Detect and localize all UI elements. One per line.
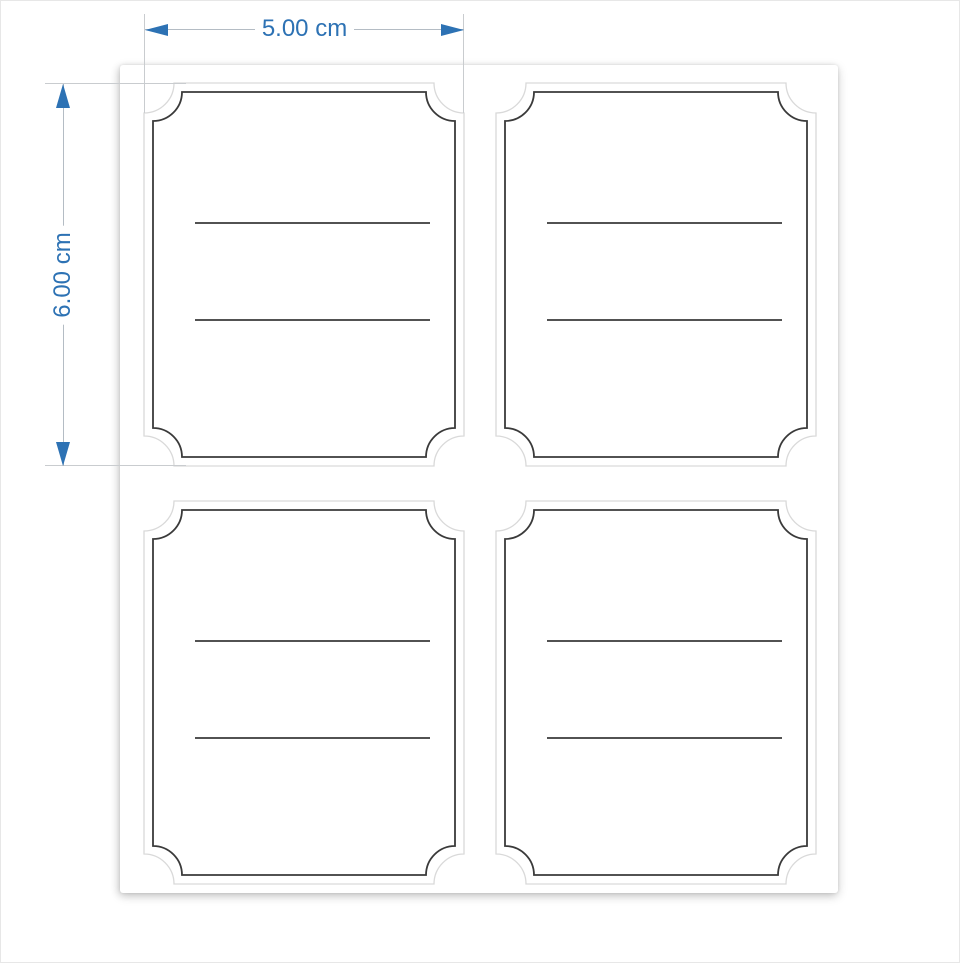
- label-sticker-top-left: [144, 83, 464, 466]
- die-cut-outline: [496, 83, 816, 466]
- arrow-down-icon: [56, 442, 70, 466]
- label-template-diagram: 5.00 cm 6.00 cm: [0, 0, 960, 963]
- printed-border: [505, 510, 807, 875]
- die-cut-outline: [144, 83, 464, 466]
- arrow-up-icon: [56, 84, 70, 108]
- height-dimension-label: 6.00 cm: [48, 225, 78, 324]
- printed-border: [505, 92, 807, 457]
- printed-border: [153, 510, 455, 875]
- labels-layer: [1, 1, 960, 963]
- label-sticker-bottom-left: [144, 501, 464, 884]
- die-cut-outline: [496, 501, 816, 884]
- width-dimension-label: 5.00 cm: [255, 14, 354, 44]
- label-sticker-bottom-right: [496, 501, 816, 884]
- die-cut-outline: [144, 501, 464, 884]
- printed-border: [153, 92, 455, 457]
- width-dimension-text: 5.00 cm: [145, 14, 464, 44]
- label-sticker-top-right: [496, 83, 816, 466]
